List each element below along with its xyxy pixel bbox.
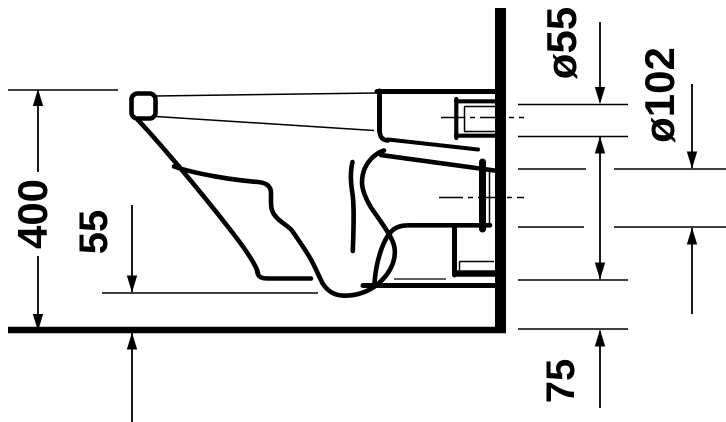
inner-bowl-and-trap-curve <box>174 151 395 296</box>
arrow-400-top <box>33 89 43 106</box>
arrow-d55-up <box>595 137 605 154</box>
arrow-d102-up <box>687 228 697 245</box>
back-block-bottom <box>388 140 478 150</box>
dimension-label-75: 75 <box>541 359 581 404</box>
thin-detail-lines <box>155 93 497 279</box>
arrow-55-up <box>127 333 137 350</box>
dimension-label-400: 400 <box>12 179 54 249</box>
front-rim-nose <box>132 94 156 119</box>
trap-rear-wall <box>351 162 354 251</box>
dimension-label-55: 55 <box>74 210 114 255</box>
rim-underside-line <box>156 117 374 131</box>
front-outer-profile <box>138 120 258 273</box>
dimension-label-d55: ø55 <box>541 7 583 79</box>
arrow-75-down <box>595 263 605 280</box>
fixing-bar-inner <box>460 262 495 271</box>
arrow-75-up <box>595 330 605 347</box>
seat-top-line <box>155 93 377 96</box>
arrow-55-down <box>127 276 137 293</box>
inlet-spigot-inner <box>464 107 497 132</box>
arrow-d102-down <box>687 152 697 169</box>
toilet-technical-drawing: 400 55 ø55 ø102 75 <box>0 0 726 422</box>
dimension-lines <box>38 22 692 422</box>
toilet-body-outline <box>132 91 500 296</box>
front-bottom-edge <box>257 270 311 279</box>
dimension-label-d102: ø102 <box>639 47 681 143</box>
arrow-d55-down <box>595 87 605 104</box>
